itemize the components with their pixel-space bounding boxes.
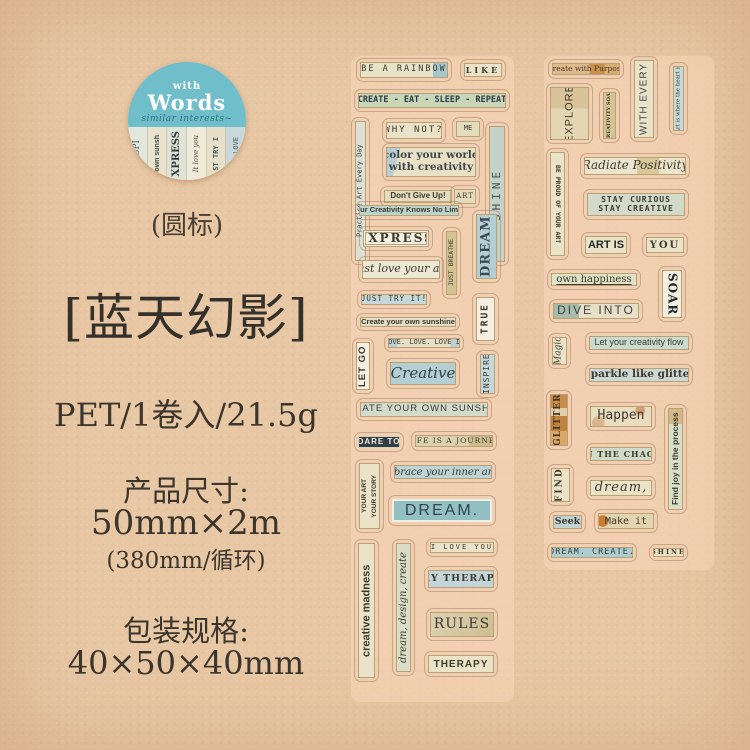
sticker-text: ART IS	[585, 236, 627, 254]
sticker-therapy: THERAPY	[424, 651, 498, 677]
sticker-find-vertical: FIND	[547, 464, 574, 506]
sticker-text: Create with Purpose	[552, 63, 620, 75]
product-spec: PET/1卷入/21.5g	[8, 390, 364, 436]
sticker-creative-madness-vertical: creative madness	[354, 539, 379, 682]
sticker-just-love-your-art: Just love your art	[358, 256, 444, 283]
sticker-text: FIND	[551, 468, 570, 502]
collage-strip: XPRESS	[167, 127, 187, 180]
sticker-text-line2: with creativity	[389, 162, 473, 174]
sticker-text: SHINE	[653, 548, 684, 557]
collage-strip: INSPI	[128, 127, 148, 180]
sticker-dream-comma: dream,	[586, 476, 656, 500]
sticker-text: Happen	[590, 406, 652, 427]
sticker-find-joy-in-the-process-vertical: Find joy in the process	[664, 404, 687, 514]
sticker-art-is-where-heart-is-vertical: Art is where the heart is	[669, 62, 688, 135]
sticker-text: Make it	[598, 513, 654, 529]
sticker-text: Sparkle like glitter	[589, 368, 689, 382]
product-title: [蓝天幻影]	[8, 278, 364, 350]
sticker-my-therapy: MY THERAPY	[424, 566, 498, 592]
sticker-text: DIVE INTO	[553, 303, 639, 319]
sticker-text: SOAR	[662, 270, 682, 318]
sticker-text: dream, design, create	[396, 543, 411, 672]
sticker-text: LET GO	[356, 342, 370, 390]
sticker-text: TRUE	[476, 297, 495, 341]
product-size-note: (380mm/循环)	[8, 541, 364, 575]
collage-word: own sunsh	[154, 135, 161, 172]
collage-strip: VE. LOVE	[226, 127, 246, 180]
sticker-creativity-knows-no-limits: Your Creativity Knows No Limits	[355, 201, 463, 220]
sticker-express: EXPRESS	[359, 226, 433, 251]
sticker-text: BE PROUD OF YOUR ART	[550, 152, 565, 256]
sticker-text: Magic	[552, 337, 567, 365]
collage-word: VE. LOVE	[232, 137, 240, 171]
product-package-value: 40×50×40mm	[8, 644, 364, 682]
sticker-create-your-own-sunshine-large: CREATE YOUR OWN SUNSHINE	[356, 398, 492, 421]
sticker-text: JUST TRY IT!	[361, 294, 427, 305]
sticker-i-love-you: I LOVE YOU	[426, 538, 498, 557]
collage-strip: own sunsh	[148, 127, 168, 180]
sticker-text: CREATE YOUR OWN SUNSHINE	[360, 402, 488, 417]
sticker-text: dream,	[590, 480, 652, 496]
sticker-text: CREATIVITY SOAR	[603, 92, 616, 139]
sticker-stay-curious-stay-creative: STAY CURIOUS STAY CREATIVE	[583, 189, 689, 220]
sticker-text: BE A RAINBOW	[360, 62, 448, 78]
sticker-true-vertical: TRUE	[472, 293, 499, 345]
sticker-radiate-positivity: Radiate Positivity	[580, 153, 690, 179]
sticker-text-line1: YOUR ART	[361, 479, 368, 513]
sticker-happen: Happen	[586, 402, 656, 431]
sticker-text: LIFE IS A JOURNEY	[415, 435, 493, 447]
sticker-text: Radiate Positivity	[584, 157, 686, 175]
sticker-text: WITH EVERY	[634, 60, 654, 138]
sticker-art-is: ART IS	[581, 232, 631, 258]
product-image: INSPI own sunsh XPRESS It love you ST TR…	[0, 0, 750, 750]
sticker-dream-design-create-vertical: dream, design, create	[392, 539, 415, 676]
sticker-explore-vertical: EXPLORE	[546, 83, 593, 144]
sticker-text: WHY NOT?	[386, 122, 442, 139]
sticker-text: DREAM.	[392, 499, 492, 522]
sticker-love-love-love-it: LOVE. LOVE. LOVE IT	[384, 334, 464, 352]
collage-strip: It love you	[187, 127, 207, 180]
sticker-text: Your Creativity Knows No Limits	[359, 205, 459, 216]
sticker-create-eat-sleep-repeat: CREATE - EAT - SLEEP - REPEAT	[354, 89, 510, 112]
sticker-dream-vertical: DREAM	[472, 210, 501, 283]
round-label-caption: (圆标)	[40, 205, 334, 242]
sticker-text: Creative	[390, 362, 456, 385]
sticker-text: YOU	[646, 237, 684, 253]
sticker-text-line2: YOUR STORY	[371, 475, 378, 518]
collage-strip: ST TRY I	[207, 127, 227, 180]
sticker-make-it: Make it	[594, 509, 658, 533]
sticker-just-breathe-vertical: JUST BREATHE	[442, 227, 461, 299]
tape-collage: INSPI own sunsh XPRESS It love you ST TR…	[128, 127, 246, 180]
sticker-text: CREATE - EAT - SLEEP - REPEAT	[358, 93, 506, 108]
sticker-text: EXPRESS	[363, 230, 429, 247]
sticker-text: creative madness	[358, 543, 375, 678]
sticker-text: Find joy in the process	[668, 408, 683, 510]
sticker-creative-script: Creative	[386, 358, 460, 389]
sticker-soar-vertical: SOAR	[658, 266, 686, 322]
sticker-create-your-own-sunshine-small: Create your own sunshine	[356, 313, 460, 331]
tape-roll-logo: INSPI own sunsh XPRESS It love you ST TR…	[128, 62, 246, 180]
sticker-in-the-chaos: IN THE CHAOS	[586, 443, 656, 465]
sticker-text: Create your own sunshine	[360, 317, 456, 327]
sticker-text: LOVE. LOVE. LOVE IT	[388, 338, 460, 348]
sticker-create-with-purpose: Create with Purpose	[548, 59, 624, 79]
sticker-be-proud-of-your-art-vertical: BE PROUD OF YOUR ART	[546, 148, 569, 260]
sticker-text: JUST BREATHE	[446, 231, 457, 295]
sticker-creativity-soar-vertical: CREATIVITY SOAR	[599, 88, 620, 143]
sticker-text: MY THERAPY	[428, 570, 494, 588]
sticker-let-go-vertical: LET GO	[352, 338, 374, 394]
sticker-your-art-your-story-vertical: YOUR ART YOUR STORY	[355, 459, 384, 533]
sticker-text: IN THE CHAOS	[590, 447, 652, 461]
sticker-text: Art is where the heart is	[673, 66, 684, 131]
sticker-text: Embrace your inner artist	[394, 465, 492, 479]
sticker-text: DARE TO	[358, 436, 400, 448]
sticker-seek: Seek	[549, 511, 586, 533]
sticker-like: LIKE	[460, 59, 506, 81]
collage-word: It love you	[192, 135, 200, 172]
sticker-dive-into: DIVE INTO	[549, 299, 643, 323]
sticker-you: YOU	[642, 233, 688, 257]
sticker-text: DREAM	[476, 214, 497, 279]
sticker-text: THERAPY	[428, 655, 494, 673]
sticker-just-try-it: JUST TRY IT!	[357, 290, 431, 309]
sticker-text: INSPIRE	[480, 354, 495, 394]
logo-subtitle-text: similar interests~	[142, 114, 233, 127]
sticker-sparkle-like-glitter: Sparkle like glitter	[585, 364, 693, 386]
sticker-color-your-world: color your world with creativity	[382, 143, 480, 181]
collage-word: XPRESS	[171, 131, 182, 176]
sticker-magic-vertical: Magic	[548, 333, 571, 369]
sticker-text: RULES	[430, 612, 494, 637]
sticker-text: Just love your art	[362, 260, 440, 279]
sticker-own-happiness: own happiness	[547, 269, 641, 290]
sticker-text: EXPLORE	[550, 87, 589, 140]
sticker-dream-create: DREAM. CREATE.	[547, 543, 637, 562]
sticker-embrace-inner-artist: Embrace your inner artist	[390, 461, 496, 483]
sticker-with-every-vertical: WITH EVERY	[630, 56, 658, 142]
sticker-shine-small: SHINE	[649, 544, 688, 561]
logo-label: with Words similar interests~	[128, 62, 246, 127]
sticker-glitter-vertical: GLITTER	[546, 390, 572, 450]
sticker-life-is-a-journey: LIFE IS A JOURNEY	[411, 431, 497, 451]
sticker-why-not: WHY NOT?	[382, 118, 446, 143]
sticker-rules: RULES	[426, 608, 498, 641]
sticker-text: Seek	[553, 515, 582, 529]
sticker-text: LIKE	[464, 63, 502, 77]
sticker-text-line2: STAY CREATIVE	[598, 205, 674, 214]
sticker-text: ME	[456, 121, 480, 137]
sticker-text: Let your creativity flow	[589, 336, 689, 350]
sticker-me: ME	[452, 117, 484, 141]
sticker-inspire-vertical: INSPIRE	[476, 350, 499, 398]
sticker-sheet-left: BE A RAINBOW LIKE CREATE - EAT - SLEEP -…	[350, 55, 515, 703]
sticker-text: DREAM. CREATE.	[551, 547, 633, 558]
collage-word: INSPI	[132, 140, 142, 167]
logo-brand-text: Words	[148, 92, 226, 114]
sticker-text: own happiness	[551, 273, 637, 286]
product-size-value: 50mm×2m	[8, 503, 364, 543]
sticker-sheet-right: Create with Purpose WITH EVERY Art is wh…	[543, 55, 715, 571]
sticker-text: GLITTER	[550, 394, 568, 446]
collage-word: ST TRY I	[212, 137, 220, 171]
sticker-be-a-rainbow: BE A RAINBOW	[356, 58, 452, 82]
sticker-text: I LOVE YOU	[430, 542, 494, 553]
sticker-dream-large: DREAM.	[388, 495, 496, 526]
sticker-let-your-creativity-flow: Let your creativity flow	[585, 332, 693, 354]
sticker-dare-to: DARE TO	[354, 432, 404, 452]
